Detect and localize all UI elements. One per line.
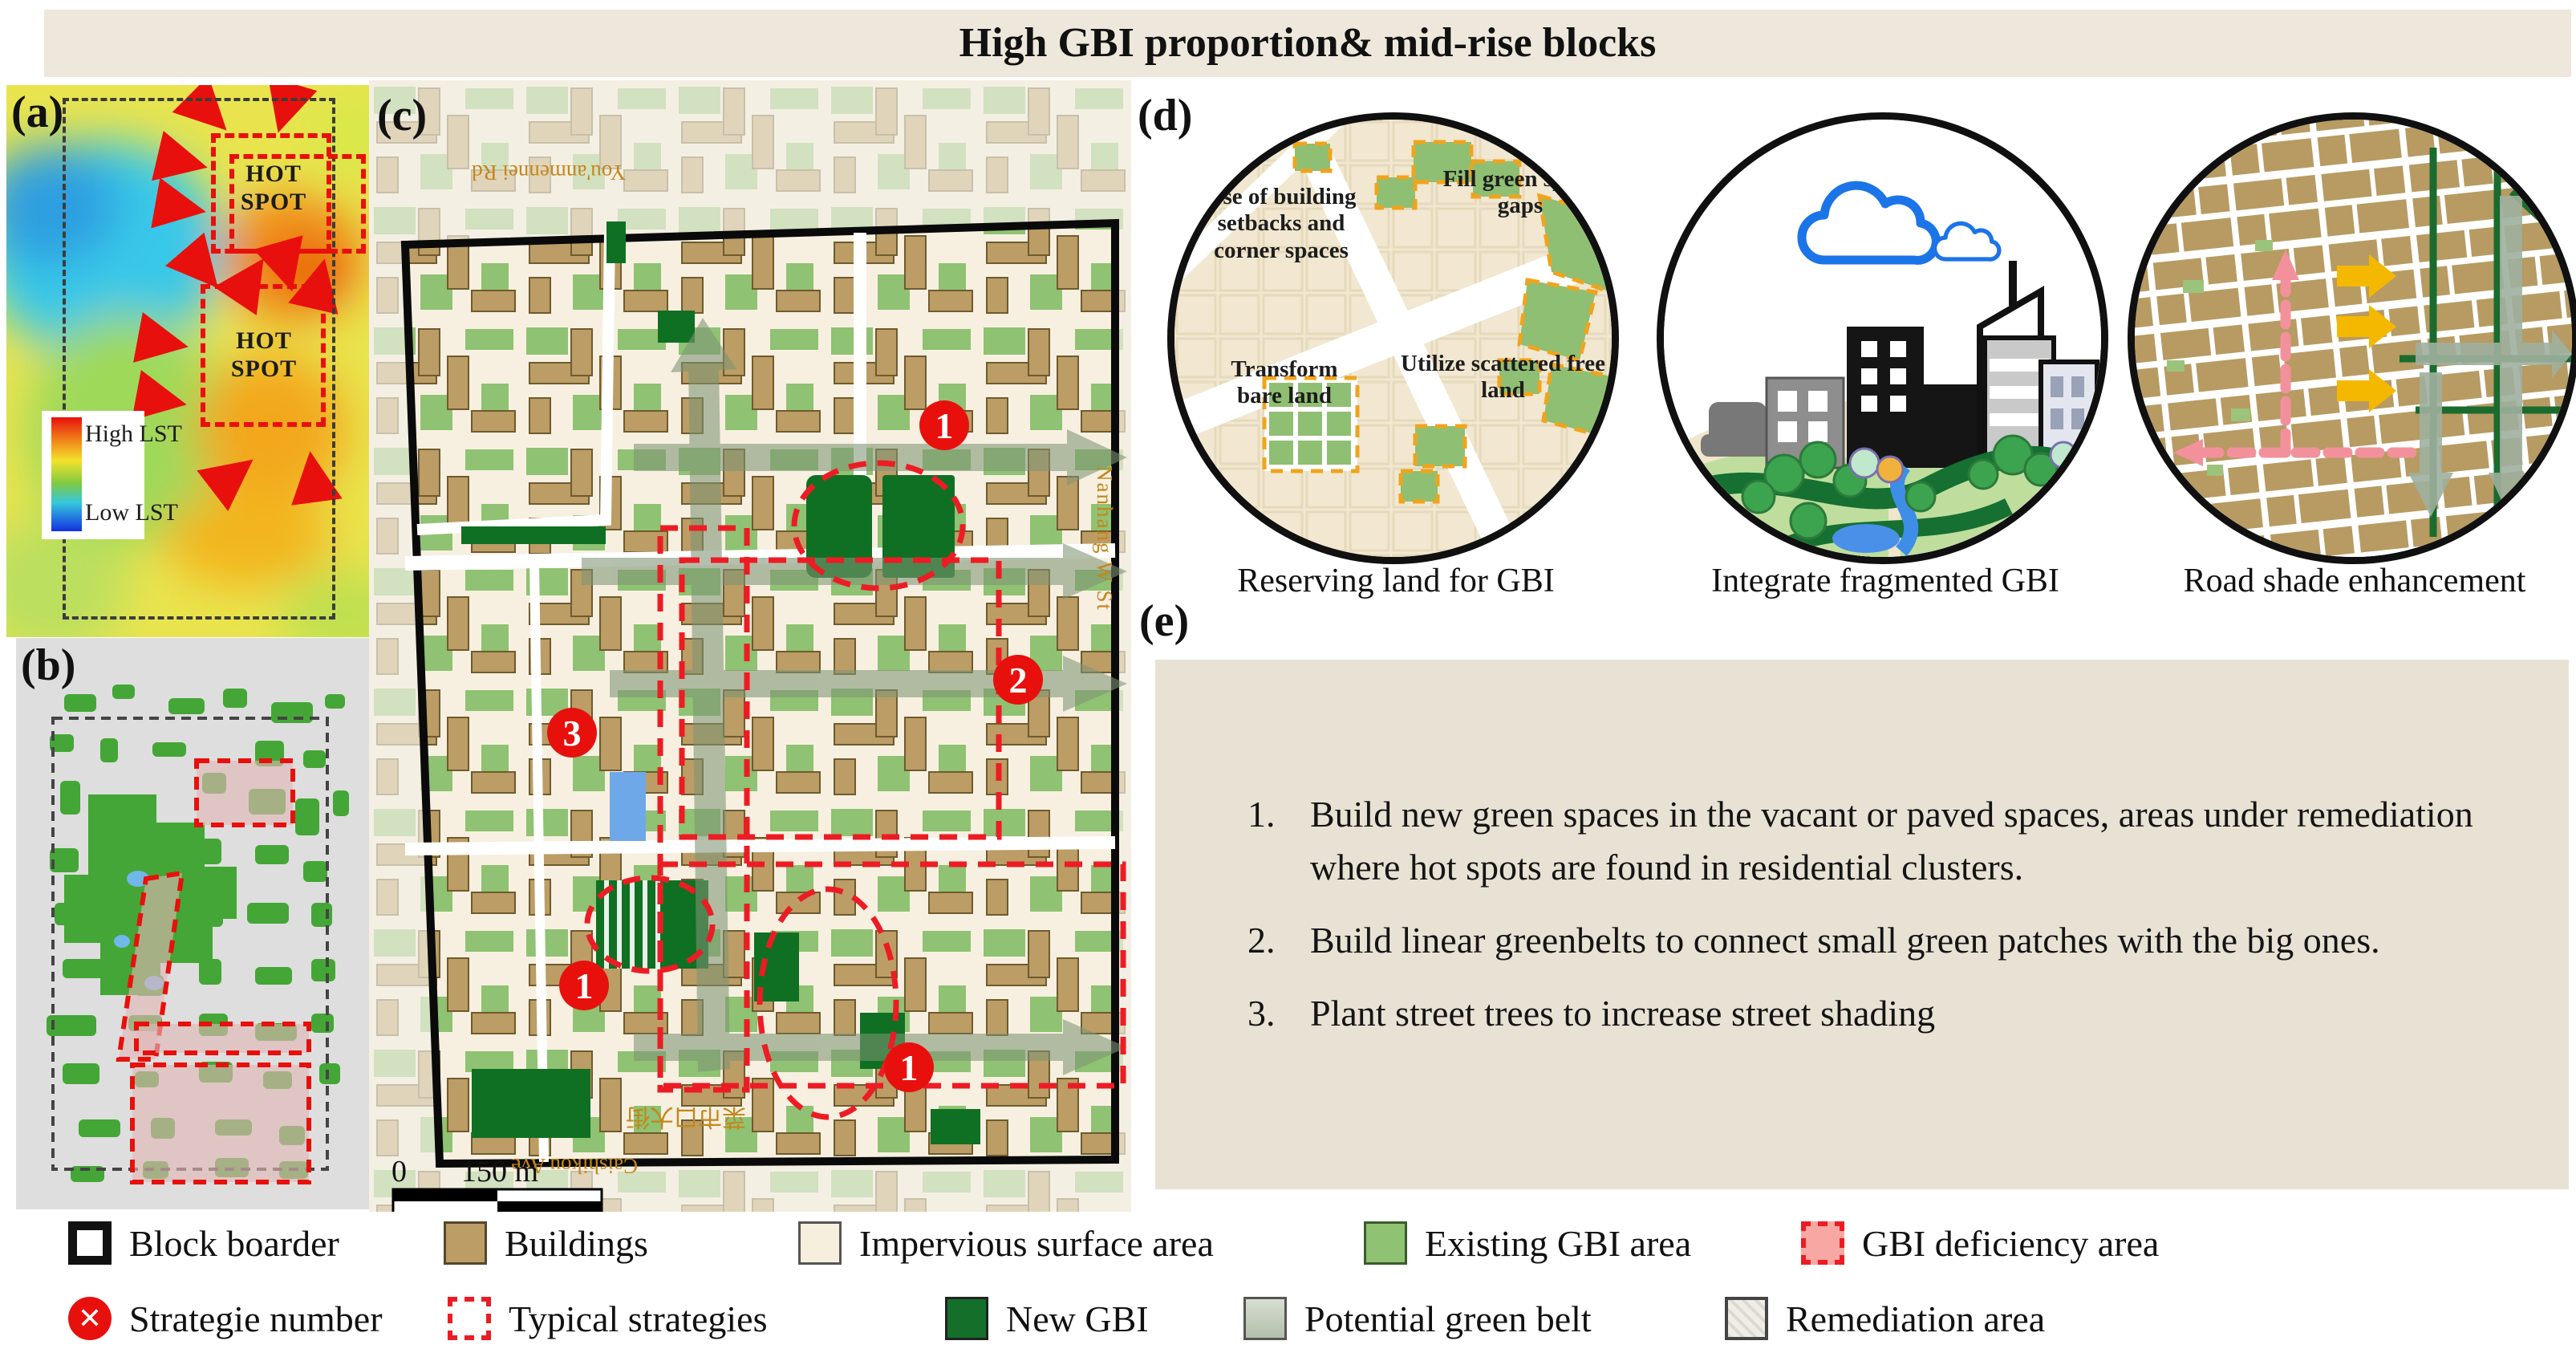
circle-integrate-gbi — [1657, 112, 2108, 564]
gbi-deficiency-label: GBI deficiency area — [1862, 1222, 2159, 1265]
hotspot-label-top: HOT SPOT — [213, 160, 334, 216]
figure-title: High GBI proportion& mid-rise blocks — [44, 10, 2571, 77]
figure-root: { "title": { "text": "High GBI proportio… — [0, 0, 2576, 1357]
panel-e-label: (e) — [1139, 595, 1189, 647]
panel-c-label: (c) — [377, 90, 427, 141]
strategy-text-3: Plant street trees to increase street sh… — [1310, 987, 1935, 1039]
legend-potential-green-belt: Potential green belt — [1243, 1297, 1592, 1340]
strategy-number-icon — [68, 1297, 112, 1340]
strategy-text-2: Build linear greenbelts to connect small… — [1310, 914, 2380, 966]
caption-reserving-land: Reserving land for GBI — [1139, 562, 1653, 607]
strategy-item-2: 2. Build linear greenbelts to connect sm… — [1247, 914, 2521, 966]
caption-road-shade: Road shade enhancement — [2098, 562, 2576, 607]
block-border-swatch — [68, 1221, 112, 1265]
impervious-swatch — [798, 1221, 842, 1265]
title-bar: High GBI proportion& mid-rise blocks — [44, 10, 2571, 77]
new-gbi-swatch — [945, 1297, 988, 1340]
water-patch — [610, 772, 646, 841]
circle-road-shade — [2128, 112, 2576, 564]
strategy-item-3: 3. Plant street trees to increase street… — [1247, 987, 2521, 1039]
marker-1c: 1 — [900, 1047, 919, 1088]
circle-reserving-land: Use of building setbacks and corner spac… — [1167, 112, 1619, 564]
panel-c-strategy-map: 1 2 3 1 1 You'anmennei Rd Nanhang W St 菜… — [369, 80, 1131, 1212]
panel-d-label: (d) — [1138, 90, 1192, 141]
impervious-label: Impervious surface area — [859, 1222, 1214, 1265]
street-bottom-cn-label: 菜市口大街 — [626, 1103, 746, 1130]
panel-e-strategy-box: 1. Build new green spaces in the vacant … — [1155, 660, 2569, 1189]
note-bare-land: Transform bare land — [1208, 356, 1361, 410]
legend-remediation: Remediation area — [1725, 1297, 2045, 1340]
marker-1b: 1 — [575, 965, 594, 1006]
existing-gbi-label: Existing GBI area — [1425, 1222, 1691, 1265]
street-right-label: Nanhang W St — [1093, 465, 1117, 611]
vegetation-map — [16, 638, 369, 1209]
lst-low-label: Low LST — [85, 499, 178, 526]
new-gbi-label: New GBI — [1006, 1298, 1149, 1340]
note-fill-gaps: Fill green space gaps — [1436, 166, 1604, 220]
marker-3: 3 — [563, 713, 582, 754]
note-scattered-land: Utilize scattered free land — [1401, 351, 1605, 404]
typical-strategies-label: Typical strategies — [509, 1298, 768, 1340]
road-shade-illustration — [2135, 120, 2572, 557]
strategy-number-label: Strategie number — [129, 1298, 383, 1340]
lst-colorbar — [51, 417, 82, 531]
legend-existing-gbi: Existing GBI area — [1364, 1221, 1691, 1265]
integrate-gbi-illustration — [1664, 120, 2101, 557]
legend-strategy-number: Strategie number — [68, 1297, 383, 1340]
legend-impervious: Impervious surface area — [798, 1221, 1214, 1265]
legend-buildings: Buildings — [444, 1221, 648, 1265]
strategy-list: 1. Build new green spaces in the vacant … — [1155, 788, 2569, 1060]
potential-green-belt-label: Potential green belt — [1304, 1298, 1592, 1340]
note-setbacks: Use of building setbacks and corner spac… — [1186, 184, 1377, 264]
panel-b-vegetation-map: (b) — [16, 638, 369, 1209]
strategy-item-1: 1. Build new green spaces in the vacant … — [1247, 788, 2521, 893]
scale-length-label: 150 m — [461, 1155, 538, 1188]
marker-2: 2 — [1009, 660, 1028, 701]
potential-green-belt-swatch — [1243, 1297, 1287, 1340]
strategy-number-3: 3. — [1247, 987, 1310, 1039]
strategy-number-2: 2. — [1247, 914, 1310, 966]
caption-integrate-gbi: Integrate fragmented GBI — [1629, 562, 2142, 607]
legend-typical-strategies: Typical strategies — [448, 1297, 768, 1340]
remediation-swatch — [1725, 1297, 1768, 1340]
existing-gbi-swatch — [1364, 1221, 1407, 1265]
scale-zero-label: 0 — [391, 1155, 407, 1188]
legend-gbi-deficiency: GBI deficiency area — [1801, 1221, 2159, 1265]
strategy-number-1: 1. — [1247, 788, 1310, 893]
panel-a-lst-map: HOT SPOT HOT SPOT High LST Low LST (a) — [6, 85, 369, 637]
lst-high-label: High LST — [85, 421, 182, 448]
street-top-label: You'anmennei Rd — [472, 160, 626, 185]
legend-block-border: Block boarder — [68, 1221, 339, 1265]
block-border-label: Block boarder — [129, 1222, 339, 1265]
panel-b-label: (b) — [21, 640, 75, 691]
legend-new-gbi: New GBI — [945, 1297, 1149, 1340]
panel-a-label: (a) — [11, 87, 63, 138]
buildings-swatch — [444, 1221, 487, 1265]
remediation-label: Remediation area — [1786, 1298, 2045, 1340]
buildings-label: Buildings — [505, 1222, 648, 1265]
typical-strategies-swatch — [448, 1297, 491, 1340]
marker-1a: 1 — [935, 405, 954, 446]
strategy-text-1: Build new green spaces in the vacant or … — [1310, 788, 2521, 893]
hotspot-label-bottom: HOT SPOT — [204, 327, 324, 383]
yellow-priority-arrows — [2337, 254, 2396, 412]
strategy-map: 1 2 3 1 1 You'anmennei Rd Nanhang W St 菜… — [369, 80, 1131, 1212]
gbi-deficiency-swatch — [1801, 1221, 1844, 1265]
